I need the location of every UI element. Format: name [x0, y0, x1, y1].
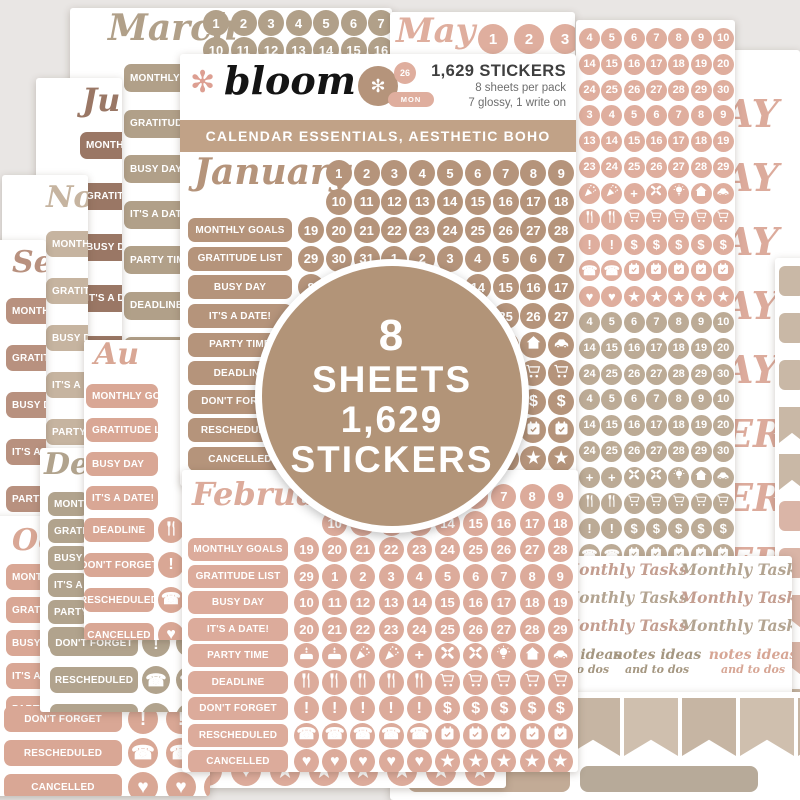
label-sticker: MONTHLY GOALS	[188, 218, 292, 242]
icon-sticker	[294, 670, 319, 695]
date-sticker-number: 28	[695, 162, 707, 173]
star-icon: ★	[695, 290, 707, 303]
date-sticker-number: 14	[443, 195, 457, 208]
date-sticker: 23	[409, 217, 435, 243]
label-sticker: BUSY DAY	[188, 275, 292, 299]
date-sticker-number: 26	[628, 85, 640, 96]
utensil-icon	[583, 210, 597, 228]
date-sticker: 12	[350, 590, 375, 615]
icon-sticker: ☎	[407, 723, 432, 748]
product-collage: March123456789101112131415161718MONTHLY …	[0, 0, 800, 800]
date-sticker: 28	[691, 157, 712, 178]
date-sticker: 26	[646, 157, 667, 178]
date-sticker-number: 21	[356, 543, 370, 556]
date-sticker-number: 16	[628, 343, 640, 354]
icon-sticker	[350, 643, 375, 668]
icon-sticker	[435, 670, 460, 695]
date-sticker: 19	[294, 537, 319, 562]
cal-icon	[672, 262, 686, 280]
heart-icon: ♥	[415, 754, 425, 770]
icon-sticker: $	[691, 234, 712, 255]
label-sticker: BUSY DAY	[48, 546, 88, 570]
cart-icon	[694, 494, 708, 512]
label-sticker: RESCHEDULED	[4, 740, 122, 766]
date-sticker-number: 6	[472, 570, 479, 583]
date-sticker: 19	[713, 131, 734, 152]
cart-icon	[716, 210, 730, 228]
date-sticker: 7	[646, 28, 667, 49]
date-sticker-number: 28	[554, 224, 568, 237]
date-sticker-number: 28	[553, 543, 567, 556]
tools-icon	[649, 184, 663, 202]
date-sticker: 13	[379, 590, 404, 615]
label-sticker: DON'T FORGET	[84, 553, 154, 577]
icon-sticker	[294, 643, 319, 668]
car-icon	[553, 334, 570, 355]
dollar-icon: $	[630, 238, 637, 251]
date-sticker: 8	[520, 564, 545, 589]
date-sticker-number: 25	[440, 623, 454, 636]
date-sticker: 7	[493, 160, 519, 186]
phone-icon: ☎	[381, 727, 401, 743]
label-sticker: GRATITUDE LIST	[46, 278, 88, 304]
utensil-icon	[163, 520, 180, 541]
date-sticker-number: 18	[673, 59, 685, 70]
date-sticker: 13	[409, 189, 435, 215]
date-sticker: 20	[322, 537, 347, 562]
date-sticker-number: 28	[673, 369, 685, 380]
icon-sticker: ★	[520, 749, 545, 772]
date-sticker-number: 27	[554, 310, 568, 323]
date-sticker: 3	[258, 10, 284, 36]
phone-icon: ☎	[353, 727, 373, 743]
icon-sticker	[435, 723, 460, 748]
date-sticker: 15	[601, 54, 622, 75]
icon-sticker: ♥	[158, 622, 184, 640]
date-sticker-number: 22	[387, 224, 401, 237]
month-title-september: Sep	[12, 248, 46, 278]
date-sticker-number: 18	[695, 136, 707, 147]
date-sticker-number: 30	[332, 252, 346, 265]
icon-sticker	[691, 467, 712, 488]
date-sticker: 22	[350, 617, 375, 642]
date-sticker: 14	[579, 54, 600, 75]
pennant-flag-sticker	[682, 698, 736, 756]
utensil-icon	[605, 494, 619, 512]
heart-icon: ♥	[586, 290, 594, 303]
icon-sticker	[548, 332, 574, 358]
icon-sticker: $	[435, 696, 460, 721]
date-sticker: 4	[407, 564, 432, 589]
cart-icon	[627, 494, 641, 512]
date-sticker: 18	[668, 54, 689, 75]
star-icon: ★	[440, 754, 454, 770]
icon-sticker	[668, 467, 689, 488]
star-icon: ★	[526, 451, 540, 467]
date-sticker: 15	[493, 274, 519, 300]
dollar-icon: $	[697, 238, 704, 251]
date-sticker-number: 20	[299, 623, 313, 636]
date-sticker: 28	[520, 617, 545, 642]
date-sticker: 25	[601, 364, 622, 385]
date-sticker: 15	[463, 511, 488, 536]
dollar-icon: $	[499, 701, 508, 717]
icon-sticker	[548, 417, 574, 443]
date-sticker-number: 26	[468, 623, 482, 636]
icon-sticker	[646, 467, 667, 488]
date-sticker: 10	[713, 312, 734, 333]
heart-icon: ♥	[151, 709, 161, 713]
cart-icon	[439, 672, 456, 693]
date-sticker: 6	[520, 246, 546, 272]
date-sticker-number: 16	[650, 136, 662, 147]
date-sticker: 3	[550, 24, 575, 54]
date-sticker-number: 25	[468, 543, 482, 556]
label-sticker: IT'S A DATE!	[188, 618, 288, 641]
date-sticker-number: 29	[695, 369, 707, 380]
date-sticker-number: 12	[356, 596, 370, 609]
badge-line: STICKERS	[290, 440, 493, 480]
star-icon: ★	[673, 290, 685, 303]
icon-sticker	[668, 493, 689, 514]
monthly-tasks-script: Monthly Tasks	[680, 590, 792, 606]
date-sticker-number: 1	[489, 32, 497, 47]
bulb-icon	[672, 184, 686, 202]
date-sticker-number: 20	[717, 343, 729, 354]
date-sticker-number: 28	[673, 85, 685, 96]
notes-ideas-script: notes ideasand to dos	[612, 648, 702, 675]
date-sticker-number: 25	[606, 85, 618, 96]
date-sticker-number: 27	[526, 224, 540, 237]
icon-sticker	[579, 183, 600, 204]
icon-sticker	[713, 209, 734, 230]
date-sticker-number: 17	[554, 281, 568, 294]
star-icon: ★	[497, 754, 511, 770]
date-sticker-number: 7	[502, 167, 509, 180]
cal-icon	[553, 420, 570, 441]
label-sticker: RESCHEDULED	[84, 588, 154, 612]
icon-sticker	[548, 643, 573, 668]
date-sticker-number: 2	[363, 167, 370, 180]
icon-sticker	[548, 723, 573, 748]
date-sticker: 14	[579, 415, 600, 436]
date-sticker: 25	[601, 80, 622, 101]
date-sticker: 4	[601, 105, 622, 126]
pack-info-line2: 7 glossy, 1 write on	[431, 96, 566, 111]
icon-sticker: $	[463, 696, 488, 721]
phone-icon: ☎	[325, 727, 345, 743]
icon-sticker	[601, 493, 622, 514]
label-sticker: PARTY TIME	[48, 600, 88, 624]
notes-line: notes ideas	[612, 648, 702, 662]
date-sticker-number: 26	[628, 446, 640, 457]
dollar-icon: $	[528, 701, 537, 717]
date-sticker-number: 11	[328, 596, 342, 609]
date-sticker: 21	[322, 617, 347, 642]
date-sticker-number: 6	[474, 167, 481, 180]
date-sticker-number: 3	[387, 570, 394, 583]
date-sticker: 11	[322, 590, 347, 615]
date-sticker: 5	[435, 564, 460, 589]
cart-icon	[524, 672, 541, 693]
icon-sticker	[713, 183, 734, 204]
flag-sticker	[779, 407, 800, 443]
date-sticker-number: 18	[673, 420, 685, 431]
house-icon	[694, 468, 708, 486]
icon-sticker: $	[691, 518, 712, 539]
house-icon	[694, 184, 708, 202]
date-sticker-number: 11	[360, 195, 374, 208]
label-sticker: MONTHLY GOALS	[188, 538, 288, 561]
date-sticker: 3	[379, 564, 404, 589]
date-sticker: 18	[548, 189, 574, 215]
date-sticker: 8	[668, 389, 689, 410]
plus-icon: +	[415, 648, 424, 664]
date-sticker-number: 14	[583, 343, 595, 354]
date-sticker-number: 7	[653, 33, 659, 44]
date-sticker-number: 22	[356, 623, 370, 636]
date-sticker: 9	[691, 312, 712, 333]
icon-sticker	[435, 643, 460, 668]
label-sticker: GRATITUDE LIST	[48, 519, 88, 543]
date-sticker-number: 19	[304, 224, 318, 237]
date-sticker: 16	[624, 338, 645, 359]
label-sticker: CANCELLED	[50, 704, 138, 712]
date-sticker: 7	[491, 564, 516, 589]
date-sticker: 24	[435, 537, 460, 562]
notes-ideas-script: notes ideasand to dos	[708, 648, 792, 675]
date-sticker-number: 5	[609, 394, 615, 405]
icon-sticker	[646, 209, 667, 230]
date-sticker-number: 9	[698, 33, 704, 44]
excl-icon: !	[168, 557, 173, 573]
date-sticker: 29	[298, 246, 324, 272]
date-sticker: 6	[463, 564, 488, 589]
star-icon: ★	[525, 754, 539, 770]
date-sticker-number: 29	[695, 85, 707, 96]
date-sticker: 26	[624, 364, 645, 385]
date-sticker: 30	[713, 364, 734, 385]
excl-icon: !	[587, 522, 591, 535]
label-sticker: BUSY DAY	[86, 452, 158, 476]
date-sticker: 16	[520, 274, 546, 300]
cart-icon	[553, 363, 570, 384]
date-sticker-number: 2	[240, 17, 247, 30]
date-sticker: 1	[478, 24, 508, 54]
date-sticker: 25	[624, 157, 645, 178]
badge-line: 8	[379, 312, 405, 360]
icon-sticker: !	[322, 696, 347, 721]
label-sticker: BUSY DAY	[6, 392, 46, 418]
date-sticker: 3	[381, 160, 407, 186]
date-sticker-number: 17	[650, 343, 662, 354]
cluster-day-sticker: 26	[394, 62, 416, 84]
date-sticker: 20	[713, 338, 734, 359]
label-sticker: CANCELLED	[84, 623, 154, 640]
pack-info: 1,629 STICKERS 8 sheets per pack 7 gloss…	[431, 62, 566, 111]
monthly-tasks-script: Monthly Tasks	[680, 618, 792, 634]
date-sticker-number: 24	[583, 85, 595, 96]
utensil-icon	[383, 672, 400, 693]
sheet-count-badge: 8 SHEETS 1,629 STICKERS	[255, 259, 529, 533]
date-sticker: 4	[579, 312, 600, 333]
date-sticker-number: 18	[554, 195, 568, 208]
date-sticker: 17	[646, 415, 667, 436]
date-sticker: 8	[668, 28, 689, 49]
date-sticker-number: 20	[717, 59, 729, 70]
date-sticker-number: 29	[299, 570, 313, 583]
date-sticker: 24	[437, 217, 463, 243]
date-sticker-number: 7	[676, 110, 682, 121]
date-sticker-number: 16	[526, 281, 540, 294]
tools-icon	[649, 468, 663, 486]
monthly-tasks-script: Monthly Tasks	[562, 590, 688, 606]
date-sticker-number: 19	[717, 136, 729, 147]
icon-sticker	[322, 643, 347, 668]
date-sticker-number: 3	[586, 110, 592, 121]
date-sticker: 22	[381, 217, 407, 243]
pennant-flag-sticker	[624, 698, 678, 756]
date-sticker-number: 17	[650, 420, 662, 431]
date-sticker-number: 26	[526, 310, 540, 323]
phone-icon: ☎	[604, 264, 620, 277]
date-sticker: 6	[624, 28, 645, 49]
icon-sticker	[691, 260, 712, 281]
date-sticker-number: 1	[335, 167, 342, 180]
icon-sticker	[520, 670, 545, 695]
icon-sticker: ★	[491, 749, 516, 772]
icon-sticker: ♥	[142, 703, 170, 712]
date-sticker-number: 7	[500, 570, 507, 583]
month-title-may: May	[396, 14, 475, 48]
date-sticker: 17	[520, 189, 546, 215]
dollar-icon: $	[556, 701, 565, 717]
bulb-icon	[672, 468, 686, 486]
heart-icon: ♥	[302, 754, 312, 770]
date-sticker: 20	[713, 54, 734, 75]
date-sticker-number: 7	[653, 394, 659, 405]
star-icon: ★	[628, 290, 640, 303]
date-sticker: 24	[579, 364, 600, 385]
dollar-icon: $	[630, 522, 637, 535]
date-sticker: 27	[491, 617, 516, 642]
badge-line: SHEETS	[312, 360, 472, 400]
popper-icon	[605, 184, 619, 202]
icon-sticker: !	[407, 696, 432, 721]
utensil-icon	[583, 494, 597, 512]
right-grid-sheet: 4567891014151617181920242526272829303456…	[576, 20, 735, 598]
date-sticker: 19	[691, 415, 712, 436]
date-sticker: 7	[646, 389, 667, 410]
date-sticker: 7	[491, 484, 516, 509]
date-sticker: 3	[579, 105, 600, 126]
dollar-icon: $	[653, 522, 660, 535]
date-sticker: 25	[601, 441, 622, 462]
icon-sticker: $	[668, 518, 689, 539]
date-sticker: 28	[548, 537, 573, 562]
icon-sticker: ☎	[379, 723, 404, 748]
icon-sticker: ☎	[128, 738, 158, 768]
flag-sticker	[779, 454, 800, 490]
date-sticker-number: 19	[299, 543, 313, 556]
star-icon: ★	[553, 754, 567, 770]
date-sticker-number: 16	[497, 517, 511, 530]
date-sticker-number: 4	[416, 570, 423, 583]
icon-sticker: ★	[548, 446, 574, 472]
date-sticker-number: 25	[471, 224, 485, 237]
icon-sticker: ★	[713, 286, 734, 307]
icon-sticker	[668, 209, 689, 230]
icon-sticker: ♥	[350, 749, 375, 772]
date-sticker: 25	[435, 617, 460, 642]
date-sticker: 26	[493, 217, 519, 243]
icon-sticker	[463, 723, 488, 748]
date-sticker: 24	[579, 80, 600, 101]
excl-icon: !	[140, 710, 146, 729]
icon-sticker	[158, 517, 184, 543]
date-sticker: 27	[646, 441, 667, 462]
tools-icon	[467, 645, 484, 666]
date-sticker: 13	[579, 131, 600, 152]
cart-icon	[649, 494, 663, 512]
cart-icon	[467, 672, 484, 693]
date-sticker-number: 15	[606, 420, 618, 431]
icon-sticker: +	[579, 467, 600, 488]
date-sticker: 18	[668, 415, 689, 436]
label-sticker: DEADLINE	[188, 671, 288, 694]
date-sticker-number: 30	[717, 446, 729, 457]
date-sticker: 28	[548, 217, 574, 243]
utensil-icon	[298, 672, 315, 693]
date-sticker-number: 17	[526, 195, 540, 208]
date-sticker: 17	[520, 511, 545, 536]
cake-icon	[326, 645, 343, 666]
date-sticker: 17	[668, 131, 689, 152]
date-sticker: 29	[691, 80, 712, 101]
date-sticker: 22	[379, 537, 404, 562]
icon-sticker: +	[624, 183, 645, 204]
cal-icon	[716, 262, 730, 280]
label-sticker: CANCELLED	[4, 774, 122, 796]
date-sticker-number: 15	[628, 136, 640, 147]
icon-sticker	[579, 209, 600, 230]
cart-icon	[495, 672, 512, 693]
utensil-icon	[411, 672, 428, 693]
heart-icon: ♥	[386, 754, 396, 770]
date-sticker-number: 19	[695, 420, 707, 431]
icon-sticker: $	[624, 518, 645, 539]
heart-icon: ♥	[175, 778, 186, 797]
date-sticker: 5	[601, 312, 622, 333]
date-sticker: 16	[491, 511, 516, 536]
icon-sticker: !	[294, 696, 319, 721]
icon-sticker	[691, 493, 712, 514]
tools-icon	[439, 645, 456, 666]
label-sticker: IT'S A DATE!	[48, 573, 88, 597]
date-sticker-number: 1	[212, 17, 219, 30]
label-sticker: CANCELLED	[188, 750, 288, 772]
label-sticker: RESCHEDULED	[188, 724, 288, 747]
date-sticker-number: 3	[267, 17, 274, 30]
date-sticker: 7	[368, 10, 392, 36]
date-sticker: 9	[691, 389, 712, 410]
date-sticker: 26	[520, 303, 546, 329]
cal-icon	[495, 725, 512, 746]
cart-icon	[627, 210, 641, 228]
sheet-header: ✻ bloom ✻ 26 MON 1,629 STICKERS 8 sheets…	[180, 54, 576, 154]
date-sticker-number: 22	[384, 543, 398, 556]
date-sticker: 14	[579, 338, 600, 359]
